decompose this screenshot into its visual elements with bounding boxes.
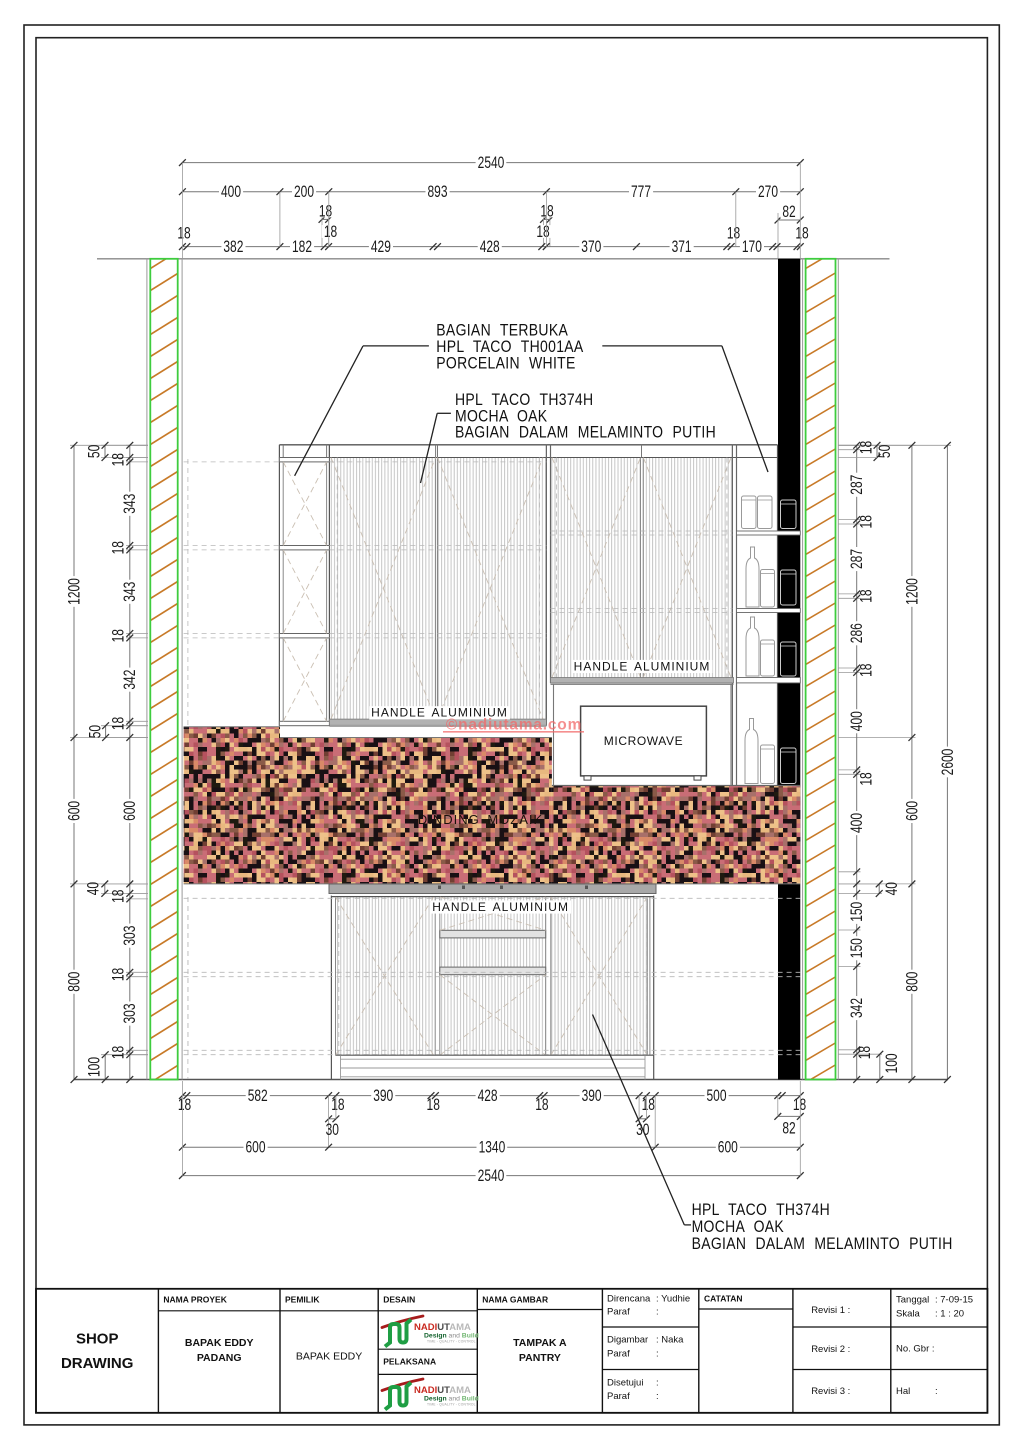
svg-text:BAPAK EDDY: BAPAK EDDY: [296, 1350, 362, 1362]
svg-text:: 1 : 20: : 1 : 20: [935, 1309, 964, 1320]
svg-text:150: 150: [848, 938, 866, 958]
svg-text:287: 287: [848, 475, 866, 495]
svg-text:1200: 1200: [903, 578, 921, 605]
svg-text:18: 18: [535, 1096, 548, 1114]
svg-text:270: 270: [758, 183, 778, 201]
svg-text:HANDLE ALUMINIUM: HANDLE ALUMINIUM: [574, 659, 711, 673]
svg-text:SHOP: SHOP: [76, 1330, 119, 1347]
svg-text:382: 382: [223, 238, 243, 256]
svg-text:18: 18: [642, 1096, 655, 1114]
svg-text:18: 18: [858, 664, 876, 677]
svg-text:342: 342: [121, 670, 139, 690]
svg-text:18: 18: [540, 203, 553, 221]
svg-text:Paraf: Paraf: [607, 1306, 630, 1317]
svg-text:40: 40: [883, 882, 901, 895]
svg-text:Direncana: Direncana: [607, 1293, 651, 1304]
svg-text:18: 18: [110, 453, 128, 466]
svg-text:82: 82: [782, 203, 795, 221]
svg-text:18: 18: [795, 225, 808, 243]
svg-text:100: 100: [883, 1053, 901, 1073]
svg-text:18: 18: [858, 589, 876, 602]
svg-text:Revisi 3 :: Revisi 3 :: [811, 1386, 850, 1397]
svg-text:40: 40: [85, 882, 103, 895]
svg-text:No. Gbr :: No. Gbr :: [896, 1344, 935, 1355]
svg-text:400: 400: [848, 711, 866, 731]
svg-text:BAGIAN DALAM MELAMINTO PUTI: BAGIAN DALAM MELAMINTO PUTIH: [455, 424, 716, 442]
svg-text:1200: 1200: [66, 578, 84, 605]
svg-text:: 7-09-15: : 7-09-15: [935, 1295, 973, 1306]
svg-text:Hal: Hal: [896, 1386, 910, 1397]
svg-text:303: 303: [121, 1003, 139, 1023]
svg-text:893: 893: [427, 183, 447, 201]
svg-text:18: 18: [727, 225, 740, 243]
svg-text:370: 370: [581, 238, 601, 256]
svg-text:DESAIN: DESAIN: [383, 1295, 415, 1305]
svg-text:500: 500: [706, 1087, 726, 1105]
svg-text:TAMPAK A: TAMPAK A: [513, 1337, 567, 1349]
svg-text:400: 400: [221, 183, 241, 201]
svg-text:18: 18: [858, 772, 876, 785]
svg-text:©nadiutama.com: ©nadiutama.com: [446, 717, 582, 734]
svg-text:100: 100: [86, 1057, 104, 1077]
svg-text:DINDING MOZAIK: DINDING MOZAIK: [418, 812, 543, 827]
svg-text:18: 18: [324, 223, 337, 241]
svg-text:18: 18: [331, 1096, 344, 1114]
svg-text:390: 390: [582, 1087, 602, 1105]
svg-text:600: 600: [903, 801, 921, 821]
svg-text:18: 18: [177, 225, 190, 243]
svg-text:343: 343: [121, 494, 139, 514]
svg-text:18: 18: [858, 515, 876, 528]
svg-text:82: 82: [782, 1120, 795, 1138]
svg-text:Tanggal: Tanggal: [896, 1295, 929, 1306]
svg-text:18: 18: [427, 1096, 440, 1114]
svg-text:18: 18: [110, 629, 128, 642]
svg-text:200: 200: [294, 183, 314, 201]
svg-text:371: 371: [672, 238, 692, 256]
svg-text:Paraf: Paraf: [607, 1348, 630, 1359]
svg-text:343: 343: [121, 582, 139, 602]
svg-text::: :: [656, 1306, 659, 1317]
svg-text:Revisi 2 :: Revisi 2 :: [811, 1344, 850, 1355]
svg-text:428: 428: [480, 238, 500, 256]
svg-text::: :: [656, 1348, 659, 1359]
svg-text:18: 18: [110, 968, 128, 981]
svg-text:PEMILIK: PEMILIK: [285, 1295, 320, 1305]
svg-text:Disetujui: Disetujui: [607, 1377, 643, 1388]
svg-text:18: 18: [319, 203, 332, 221]
svg-text:182: 182: [292, 238, 312, 256]
svg-text:Paraf: Paraf: [607, 1391, 630, 1402]
svg-text:50: 50: [86, 445, 104, 458]
svg-text:800: 800: [903, 972, 921, 992]
svg-text:PELAKSANA: PELAKSANA: [383, 1357, 436, 1367]
svg-text:18: 18: [178, 1096, 191, 1114]
svg-text:NAMA PROYEK: NAMA PROYEK: [163, 1295, 227, 1305]
svg-text:777: 777: [631, 183, 651, 201]
svg-text:CATATAN: CATATAN: [704, 1294, 743, 1304]
svg-text:BAPAK EDDY: BAPAK EDDY: [185, 1337, 254, 1349]
svg-text:2540: 2540: [478, 154, 505, 172]
svg-text:429: 429: [371, 238, 391, 256]
svg-text:428: 428: [478, 1087, 498, 1105]
svg-text:NAMA GAMBAR: NAMA GAMBAR: [482, 1295, 548, 1305]
svg-text:600: 600: [66, 801, 84, 821]
svg-text:Revisi 1 :: Revisi 1 :: [811, 1305, 850, 1316]
svg-text::: :: [656, 1391, 659, 1402]
svg-text:PADANG: PADANG: [197, 1352, 242, 1364]
svg-text:18: 18: [110, 717, 128, 730]
svg-text:18: 18: [110, 541, 128, 554]
svg-text:287: 287: [848, 549, 866, 569]
svg-text:50: 50: [876, 445, 894, 458]
svg-text:HPL TACO TH374H: HPL TACO TH374H: [692, 1201, 830, 1219]
svg-text:600: 600: [121, 801, 139, 821]
svg-text:800: 800: [66, 972, 84, 992]
svg-text:18: 18: [536, 223, 549, 241]
svg-text:390: 390: [373, 1087, 393, 1105]
svg-text::: :: [935, 1386, 938, 1397]
svg-text:MICROWAVE: MICROWAVE: [604, 734, 683, 748]
svg-text:600: 600: [245, 1139, 265, 1157]
svg-text:18: 18: [793, 1096, 806, 1114]
svg-text:BAGIAN DALAM MELAMINTO PUTI: BAGIAN DALAM MELAMINTO PUTIH: [692, 1235, 953, 1253]
svg-text:30: 30: [326, 1121, 339, 1139]
svg-text:2540: 2540: [478, 1167, 505, 1185]
svg-text:342: 342: [848, 998, 866, 1018]
svg-text:Skala: Skala: [896, 1309, 920, 1320]
svg-text:DRAWING: DRAWING: [61, 1355, 134, 1372]
svg-text:2600: 2600: [939, 749, 957, 776]
svg-text:18: 18: [856, 1046, 874, 1059]
svg-text:1340: 1340: [479, 1139, 506, 1157]
svg-text:600: 600: [718, 1139, 738, 1157]
svg-text:Digambar: Digambar: [607, 1334, 648, 1345]
svg-text:: Naka: : Naka: [656, 1334, 684, 1345]
svg-text:18: 18: [110, 1046, 128, 1059]
svg-text:303: 303: [121, 926, 139, 946]
svg-text:286: 286: [848, 623, 866, 643]
svg-text:MOCHA OAK: MOCHA OAK: [692, 1218, 785, 1236]
svg-text:50: 50: [87, 725, 105, 738]
svg-text:18: 18: [110, 890, 128, 903]
svg-text:170: 170: [742, 238, 762, 256]
svg-text:582: 582: [248, 1087, 268, 1105]
svg-text:400: 400: [848, 813, 866, 833]
svg-text:150: 150: [848, 902, 866, 922]
svg-text:HANDLE ALUMINIUM: HANDLE ALUMINIUM: [432, 900, 569, 914]
svg-text:PANTRY: PANTRY: [519, 1352, 561, 1364]
svg-text:PORCELAIN WHITE: PORCELAIN WHITE: [436, 354, 575, 372]
svg-text::: :: [656, 1377, 659, 1388]
svg-text:18: 18: [858, 441, 876, 454]
svg-text:: Yudhie: : Yudhie: [656, 1293, 690, 1304]
